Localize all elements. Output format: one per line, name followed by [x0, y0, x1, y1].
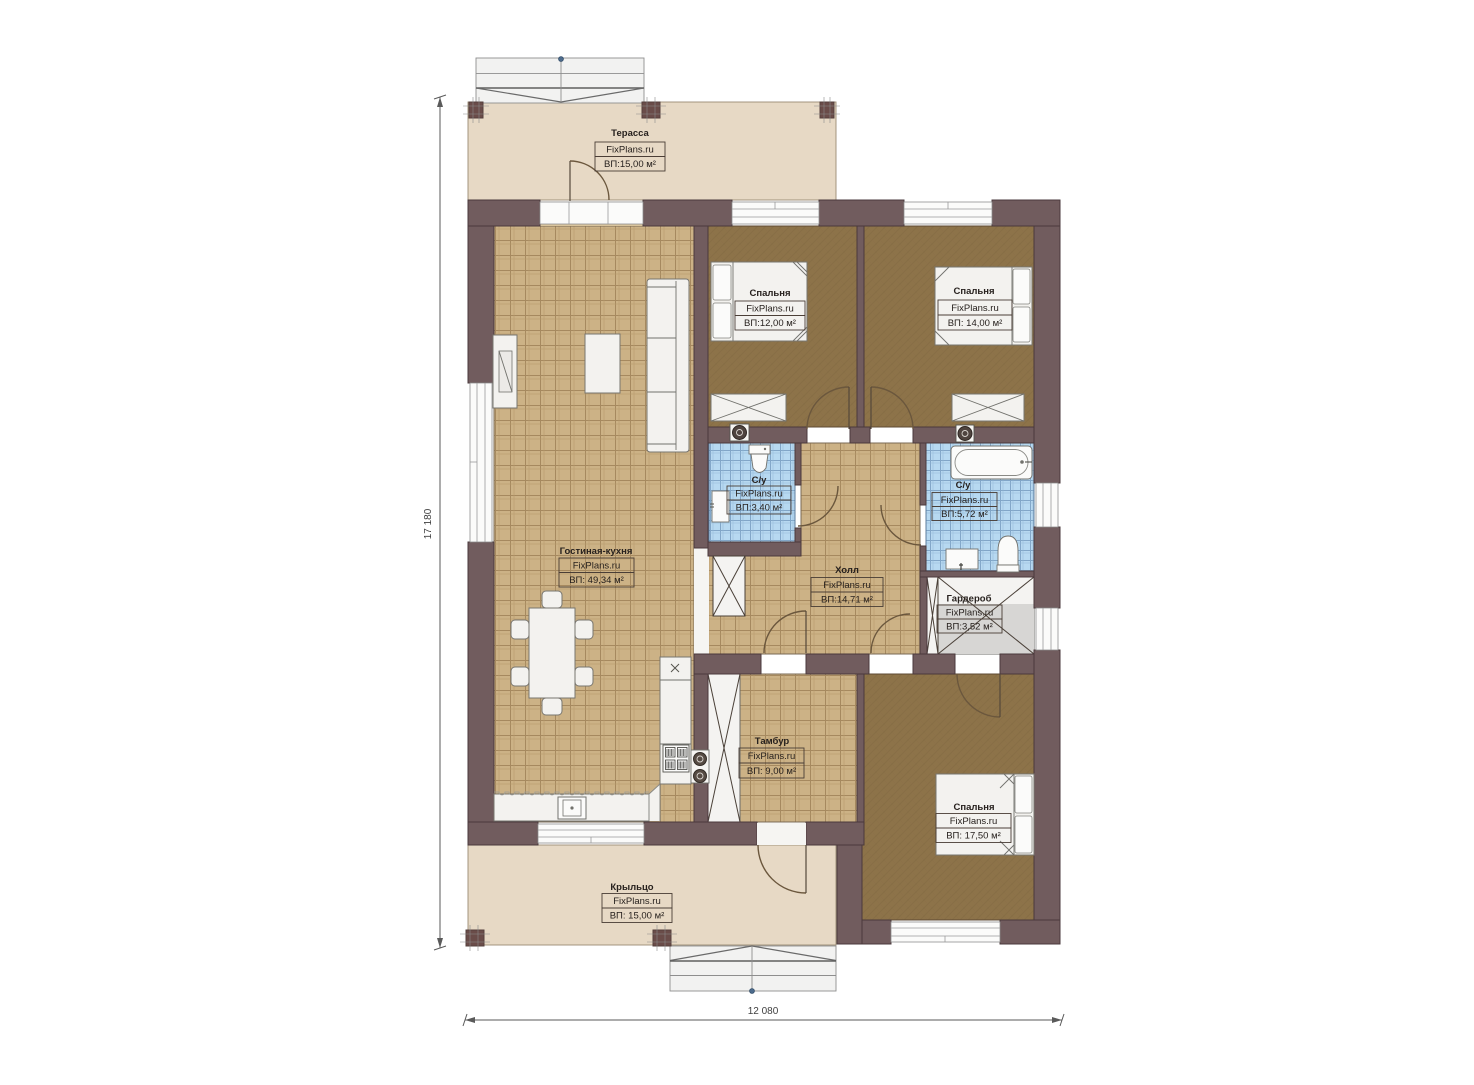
svg-text:Гардероб: Гардероб: [947, 594, 992, 605]
svg-text:FixPlans.ru: FixPlans.ru: [573, 561, 621, 572]
svg-text:Тамбур: Тамбур: [755, 736, 790, 747]
svg-text:ВП:3,52 м²: ВП:3,52 м²: [946, 622, 993, 633]
svg-text:ВП: 17,50 м²: ВП: 17,50 м²: [946, 831, 1001, 842]
svg-text:С/у: С/у: [956, 480, 972, 491]
svg-text:ВП: 9,00 м²: ВП: 9,00 м²: [747, 766, 796, 777]
svg-text:Крыльцо: Крыльцо: [610, 882, 653, 893]
svg-text:Терасса: Терасса: [611, 128, 649, 139]
svg-text:FixPlans.ru: FixPlans.ru: [946, 608, 994, 619]
svg-text:FixPlans.ru: FixPlans.ru: [823, 580, 871, 591]
svg-text:ВП: 14,00 м²: ВП: 14,00 м²: [948, 318, 1003, 329]
svg-text:ВП:12,00 м²: ВП:12,00 м²: [744, 318, 796, 329]
svg-text:ВП:5,72 м²: ВП:5,72 м²: [941, 509, 988, 520]
svg-text:ВП:14,71 м²: ВП:14,71 м²: [821, 595, 873, 606]
svg-text:12 080: 12 080: [748, 1006, 779, 1017]
svg-text:Гостиная-кухня: Гостиная-кухня: [560, 546, 633, 557]
svg-text:FixPlans.ru: FixPlans.ru: [613, 896, 661, 907]
svg-text:FixPlans.ru: FixPlans.ru: [941, 495, 989, 506]
svg-text:FixPlans.ru: FixPlans.ru: [950, 816, 998, 827]
svg-text:FixPlans.ru: FixPlans.ru: [746, 304, 794, 315]
svg-text:ВП:15,00 м²: ВП:15,00 м²: [604, 159, 656, 170]
svg-text:Спальня: Спальня: [953, 286, 994, 297]
svg-text:FixPlans.ru: FixPlans.ru: [748, 751, 796, 762]
svg-text:FixPlans.ru: FixPlans.ru: [951, 303, 999, 314]
svg-text:Спальня: Спальня: [749, 288, 790, 299]
svg-text:С/у: С/у: [752, 475, 768, 486]
svg-text:FixPlans.ru: FixPlans.ru: [606, 145, 654, 156]
svg-text:Спальня: Спальня: [953, 802, 994, 813]
svg-text:ВП:3,40 м²: ВП:3,40 м²: [736, 503, 783, 514]
svg-text:ВП: 15,00 м²: ВП: 15,00 м²: [610, 911, 665, 922]
svg-text:Холл: Холл: [835, 565, 859, 576]
svg-text:17 180: 17 180: [423, 508, 434, 539]
svg-text:FixPlans.ru: FixPlans.ru: [735, 489, 783, 500]
svg-text:ВП: 49,34 м²: ВП: 49,34 м²: [569, 575, 624, 586]
